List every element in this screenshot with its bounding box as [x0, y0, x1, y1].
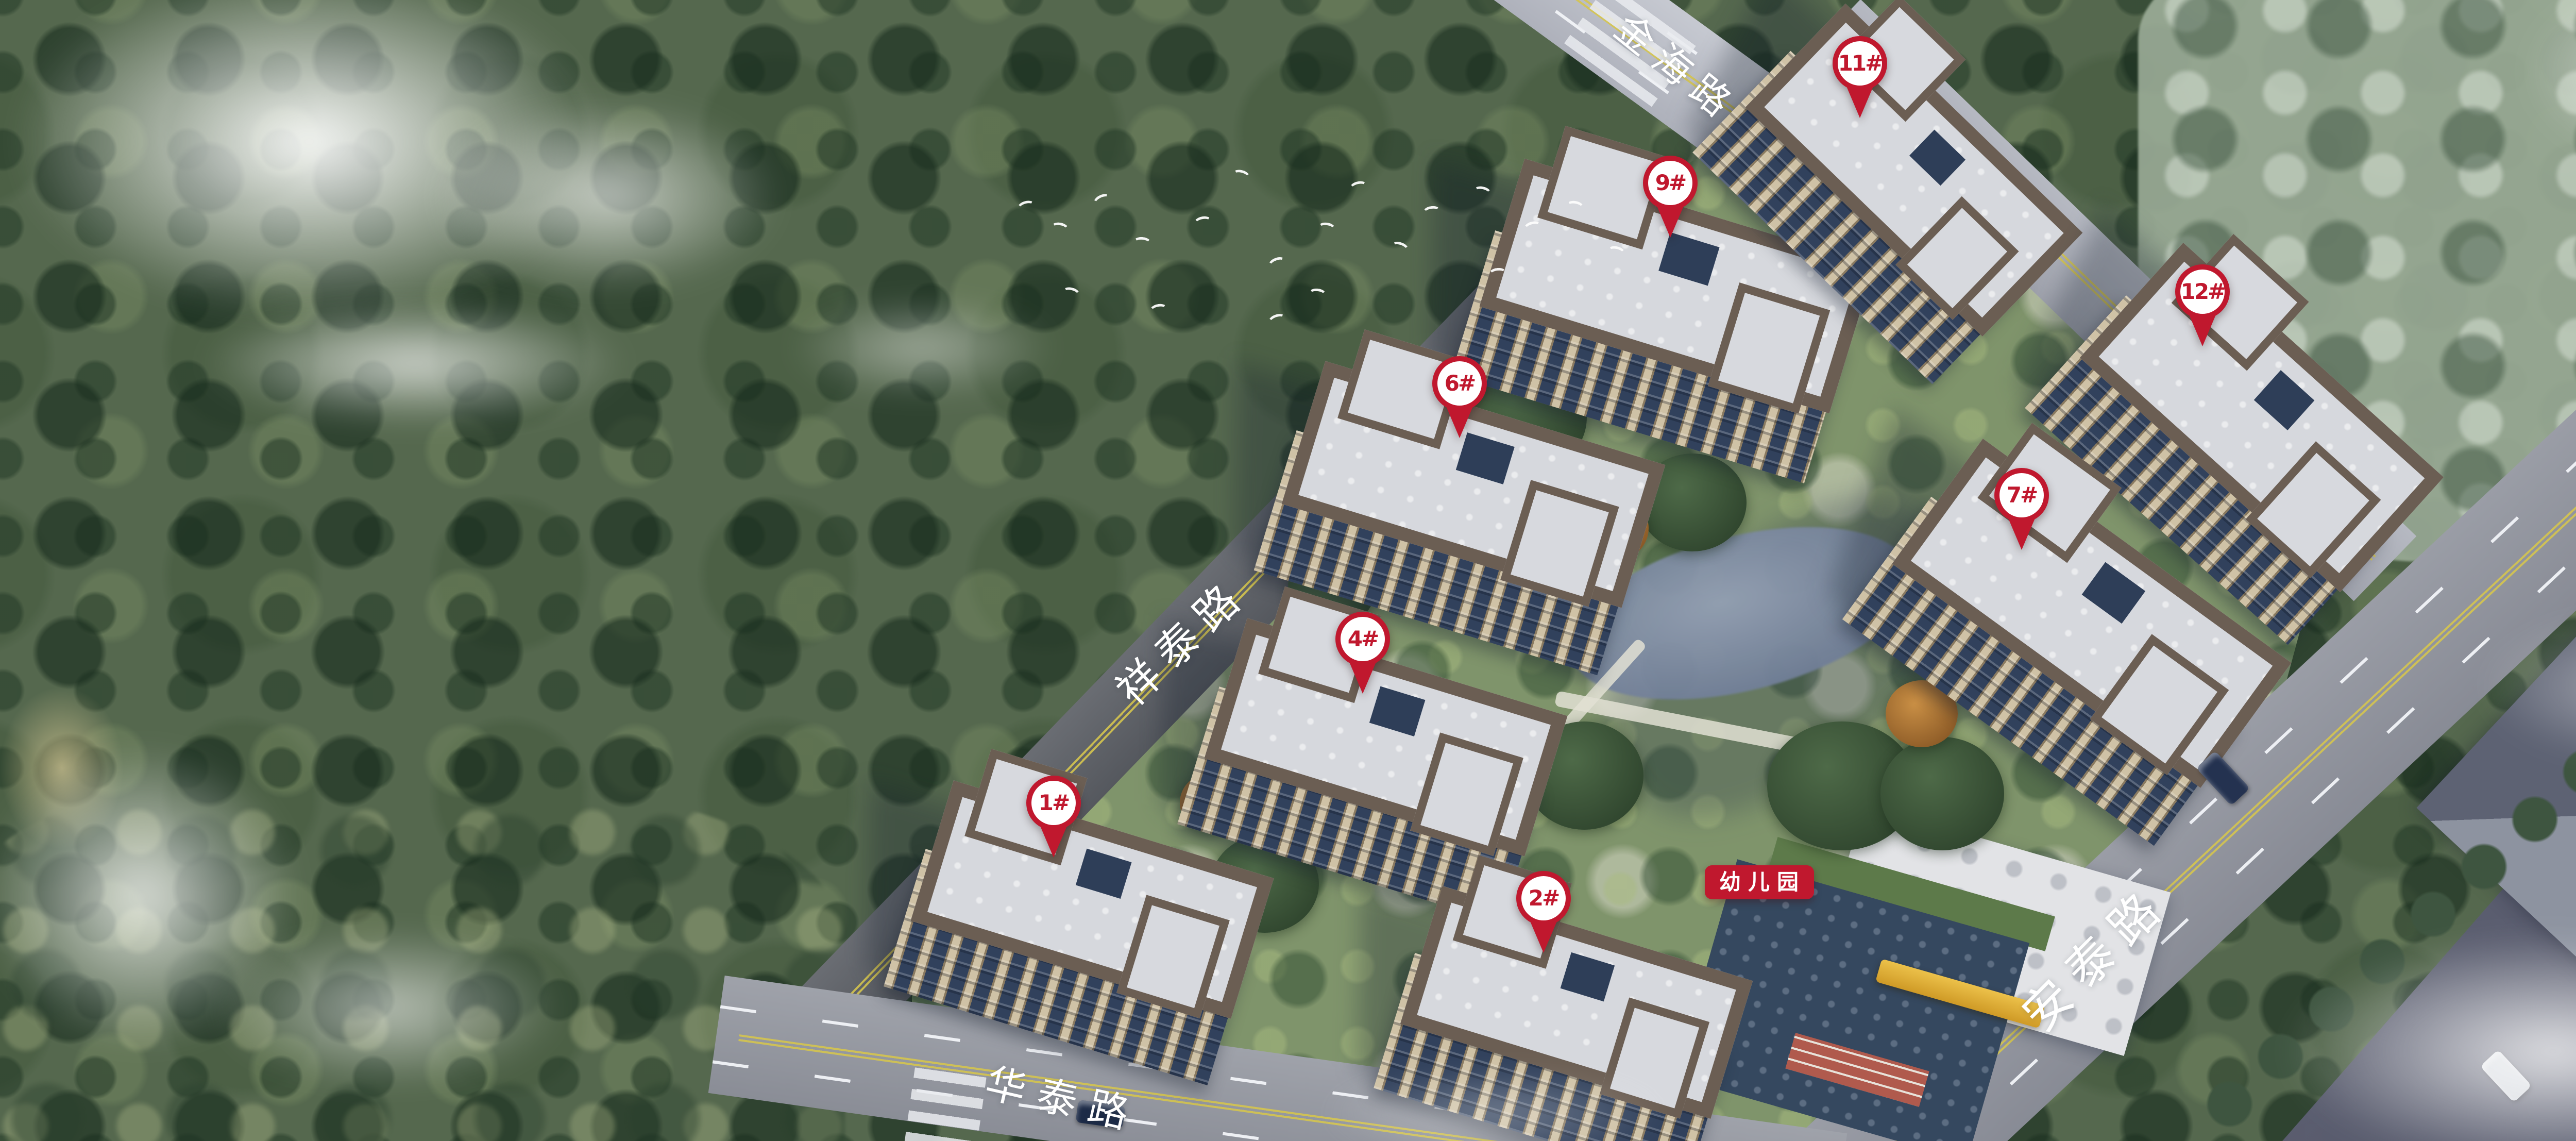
aerial-rendering: 鸟瞰图 1#2#4#6#7#9#11#12#金海路祥泰路安泰路华泰路幼儿园: [0, 0, 2576, 1141]
marker-badge: 2#: [1516, 871, 1571, 926]
marker-badge: 9#: [1643, 156, 1698, 210]
marker-badge: 11#: [1833, 36, 1887, 91]
road-label-安泰路: 安泰路: [2004, 866, 2181, 1044]
road-label-祥泰路: 祥泰路: [1100, 561, 1258, 717]
marker-badge: 1#: [1026, 776, 1081, 830]
facility-label-kindergarten: 幼儿园: [1705, 865, 1814, 899]
annotation-layer: 鸟瞰图 1#2#4#6#7#9#11#12#金海路祥泰路安泰路华泰路幼儿园: [0, 0, 2576, 1141]
road-label-华泰路: 华泰路: [980, 1051, 1147, 1141]
road-label-金海路: 金海路: [1605, 0, 1752, 133]
marker-badge: 7#: [1994, 468, 2049, 523]
marker-badge: 12#: [2175, 264, 2230, 319]
marker-badge: 6#: [1432, 356, 1487, 411]
marker-badge: 4#: [1335, 612, 1390, 666]
